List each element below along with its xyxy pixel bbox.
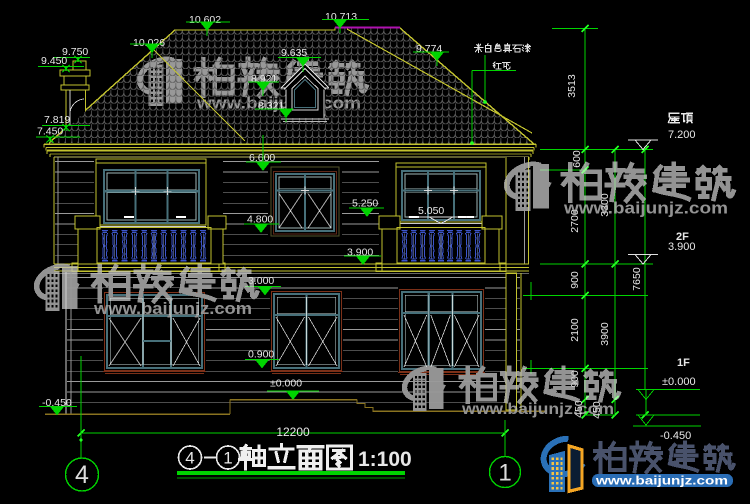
svg-text:600: 600: [571, 150, 583, 168]
svg-text:900: 900: [569, 271, 581, 289]
svg-text:www.baijunjz.com: www.baijunjz.com: [461, 401, 614, 418]
svg-text:12200: 12200: [276, 425, 310, 439]
svg-text:5.050: 5.050: [418, 205, 444, 217]
svg-text:1F: 1F: [677, 357, 690, 369]
svg-text:1:100: 1:100: [358, 448, 412, 471]
svg-text:3513: 3513: [566, 74, 578, 98]
svg-text:7.819: 7.819: [44, 114, 70, 126]
svg-text:www.baijunjz.com: www.baijunjz.com: [93, 300, 252, 318]
svg-text:0.900: 0.900: [248, 349, 274, 361]
svg-text:3.900: 3.900: [668, 241, 696, 253]
svg-text:7.450: 7.450: [37, 126, 63, 138]
svg-text:7.200: 7.200: [668, 129, 696, 141]
svg-text:1: 1: [223, 449, 232, 468]
svg-text:±0.000: ±0.000: [662, 376, 696, 388]
svg-text:2100: 2100: [569, 318, 581, 342]
svg-text:4: 4: [185, 449, 194, 468]
svg-text:www.baijunjz.com: www.baijunjz.com: [563, 199, 728, 218]
svg-text:7650: 7650: [631, 267, 643, 291]
svg-text:±0.000: ±0.000: [270, 378, 302, 390]
svg-text:4: 4: [75, 461, 89, 489]
svg-text:1: 1: [498, 460, 511, 487]
svg-text:-0.450: -0.450: [660, 430, 691, 442]
svg-text:3900: 3900: [599, 322, 611, 346]
svg-text:www.baijunjz.com: www.baijunjz.com: [595, 474, 728, 488]
